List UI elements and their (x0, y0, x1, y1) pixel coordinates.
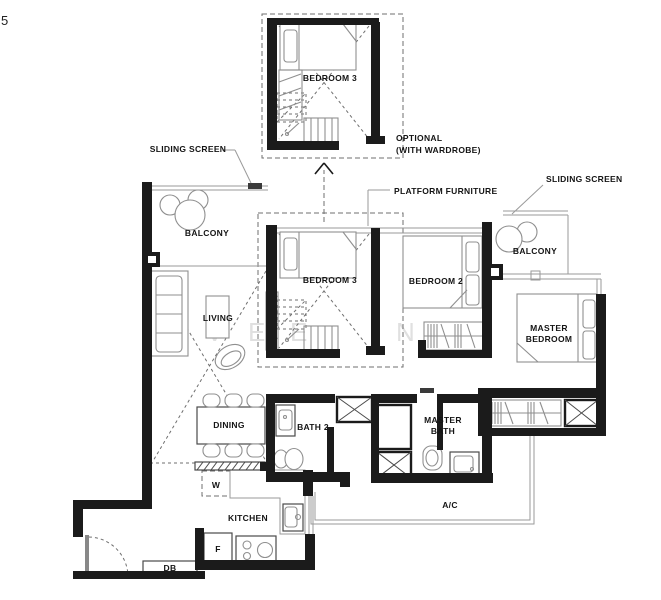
duct-icon (377, 405, 411, 449)
optional-note-line2: (WITH WARDROBE) (396, 145, 481, 155)
room-label-kitchen: KITCHEN (228, 513, 268, 523)
sliding-screen-left-panel (248, 183, 262, 189)
fridge-label: F (215, 544, 221, 554)
toilet-icon (274, 449, 303, 470)
room-label-master-bedroom-line2: BEDROOM (526, 334, 573, 344)
washer-label: W (212, 480, 221, 490)
wardrobe-icon (424, 322, 483, 350)
watermark-letter: E (248, 317, 265, 347)
room-label-master-bedroom-line1: MASTER (530, 323, 568, 333)
room-label-balcony-right: BALCONY (513, 246, 557, 256)
entry-door-arc (89, 537, 128, 576)
furniture (85, 24, 597, 575)
floor-plan-drawing: V E E N A N (0, 0, 661, 600)
room-label-living: LIVING (203, 313, 233, 323)
room-label-bedroom3-optional: BEDROOM 3 (303, 73, 357, 83)
sliding-screen-left-label: SLIDING SCREEN (150, 144, 226, 154)
bed-icon (403, 236, 482, 308)
room-label-bedroom3: BEDROOM 3 (303, 275, 357, 285)
wardrobe-icon (485, 400, 561, 426)
db-label: DB (164, 563, 177, 573)
duct-icon (337, 397, 372, 422)
watermark-letter: N (396, 317, 415, 347)
room-label-master-bath-line2: BATH (431, 426, 455, 436)
bed-icon (280, 232, 356, 278)
floor-plan: V E E N A N (0, 0, 661, 600)
kitchen-top-wall (195, 462, 265, 470)
room-label-ac: A/C (442, 500, 458, 510)
dashed-lines (89, 14, 403, 576)
balcony-table-icon (160, 190, 208, 230)
watermark-letter: E (290, 317, 307, 347)
room-label-balcony-left: BALCONY (185, 228, 229, 238)
platform-furniture-label: PLATFORM FURNITURE (394, 186, 497, 196)
stove-icon (236, 536, 276, 563)
page-number: 5 (1, 13, 8, 28)
room-label-dining: DINING (213, 420, 245, 430)
sliding-screen-right-label: SLIDING SCREEN (546, 174, 622, 184)
duct-icon (565, 400, 598, 426)
sink-icon (450, 452, 479, 476)
wardrobe-icon (279, 70, 302, 120)
sink-icon (276, 405, 295, 436)
kitchen-sink-icon (283, 504, 303, 531)
room-label-bedroom2: BEDROOM 2 (409, 276, 463, 286)
sofa-icon (151, 271, 188, 356)
bed-icon (280, 24, 356, 70)
room-label-master-bath-line1: MASTER (424, 415, 462, 425)
optional-note-line1: OPTIONAL (396, 133, 442, 143)
sliding-screen-right-leader (512, 185, 543, 214)
room-label-bath2: BATH 2 (297, 422, 329, 432)
entry-door-leaf (85, 535, 89, 575)
